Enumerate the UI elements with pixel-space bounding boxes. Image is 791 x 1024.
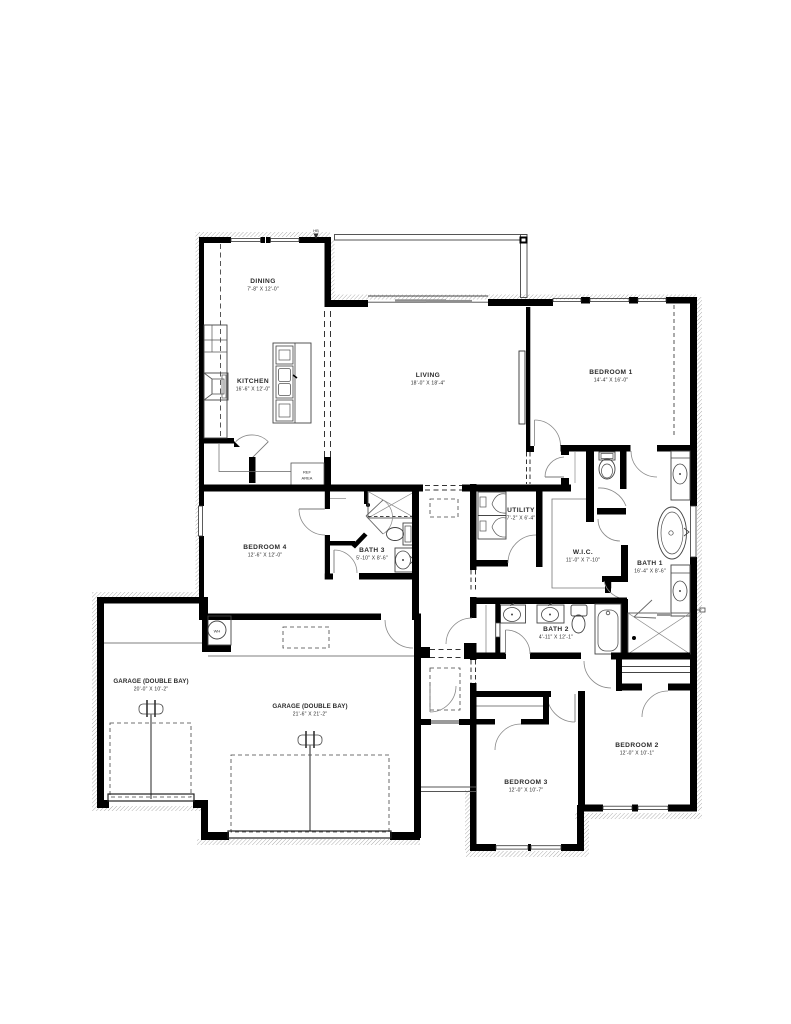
svg-text:GARAGE (DOUBLE BAY): GARAGE (DOUBLE BAY) [272,703,347,710]
svg-text:BEDROOM 3: BEDROOM 3 [504,779,548,786]
svg-text:DINING: DINING [250,278,275,285]
svg-text:11'-0" X 7'-10": 11'-0" X 7'-10" [566,558,600,564]
svg-text:LIVING: LIVING [416,372,440,379]
svg-text:12'-0" X 10'-7": 12'-0" X 10'-7" [509,788,544,794]
svg-text:BEDROOM 4: BEDROOM 4 [243,544,287,551]
svg-text:18'-0" X 18'-4": 18'-0" X 18'-4" [411,381,446,387]
svg-text:WH: WH [214,629,221,634]
svg-text:W.I.C.: W.I.C. [573,549,593,556]
svg-text:BATH 1: BATH 1 [637,560,663,567]
svg-text:BEDROOM 2: BEDROOM 2 [615,742,659,749]
svg-text:REF: REF [303,470,312,475]
svg-text:20'-0" X 10'-2": 20'-0" X 10'-2" [134,687,169,693]
svg-text:7'-2" X 6'-4": 7'-2" X 6'-4" [507,516,536,522]
svg-text:16'-4" X 8'-6": 16'-4" X 8'-6" [634,569,666,575]
svg-text:HB: HB [313,228,319,233]
svg-text:KITCHEN: KITCHEN [237,378,269,385]
svg-text:12'-0" X 10'-1": 12'-0" X 10'-1" [620,751,655,757]
svg-text:BEDROOM 1: BEDROOM 1 [589,369,633,376]
svg-text:BATH 3: BATH 3 [359,547,385,554]
svg-text:4'-11" X 12'-1": 4'-11" X 12'-1" [539,635,573,641]
svg-text:12'-6" X 12'-0": 12'-6" X 12'-0" [248,553,283,559]
svg-text:14'-4" X 16'-0": 14'-4" X 16'-0" [594,378,629,384]
svg-text:16'-6" X 12'-0": 16'-6" X 12'-0" [236,387,271,393]
svg-text:BATH 2: BATH 2 [543,626,569,633]
svg-text:21'-6" X 21'-2": 21'-6" X 21'-2" [293,712,328,718]
svg-text:UTILITY: UTILITY [507,507,535,514]
svg-text:7'-8" X 12'-0": 7'-8" X 12'-0" [247,287,279,293]
svg-text:GARAGE (DOUBLE BAY): GARAGE (DOUBLE BAY) [113,678,188,685]
svg-text:AREA: AREA [302,476,313,481]
svg-text:5'-10" X 8'-6": 5'-10" X 8'-6" [356,556,388,562]
